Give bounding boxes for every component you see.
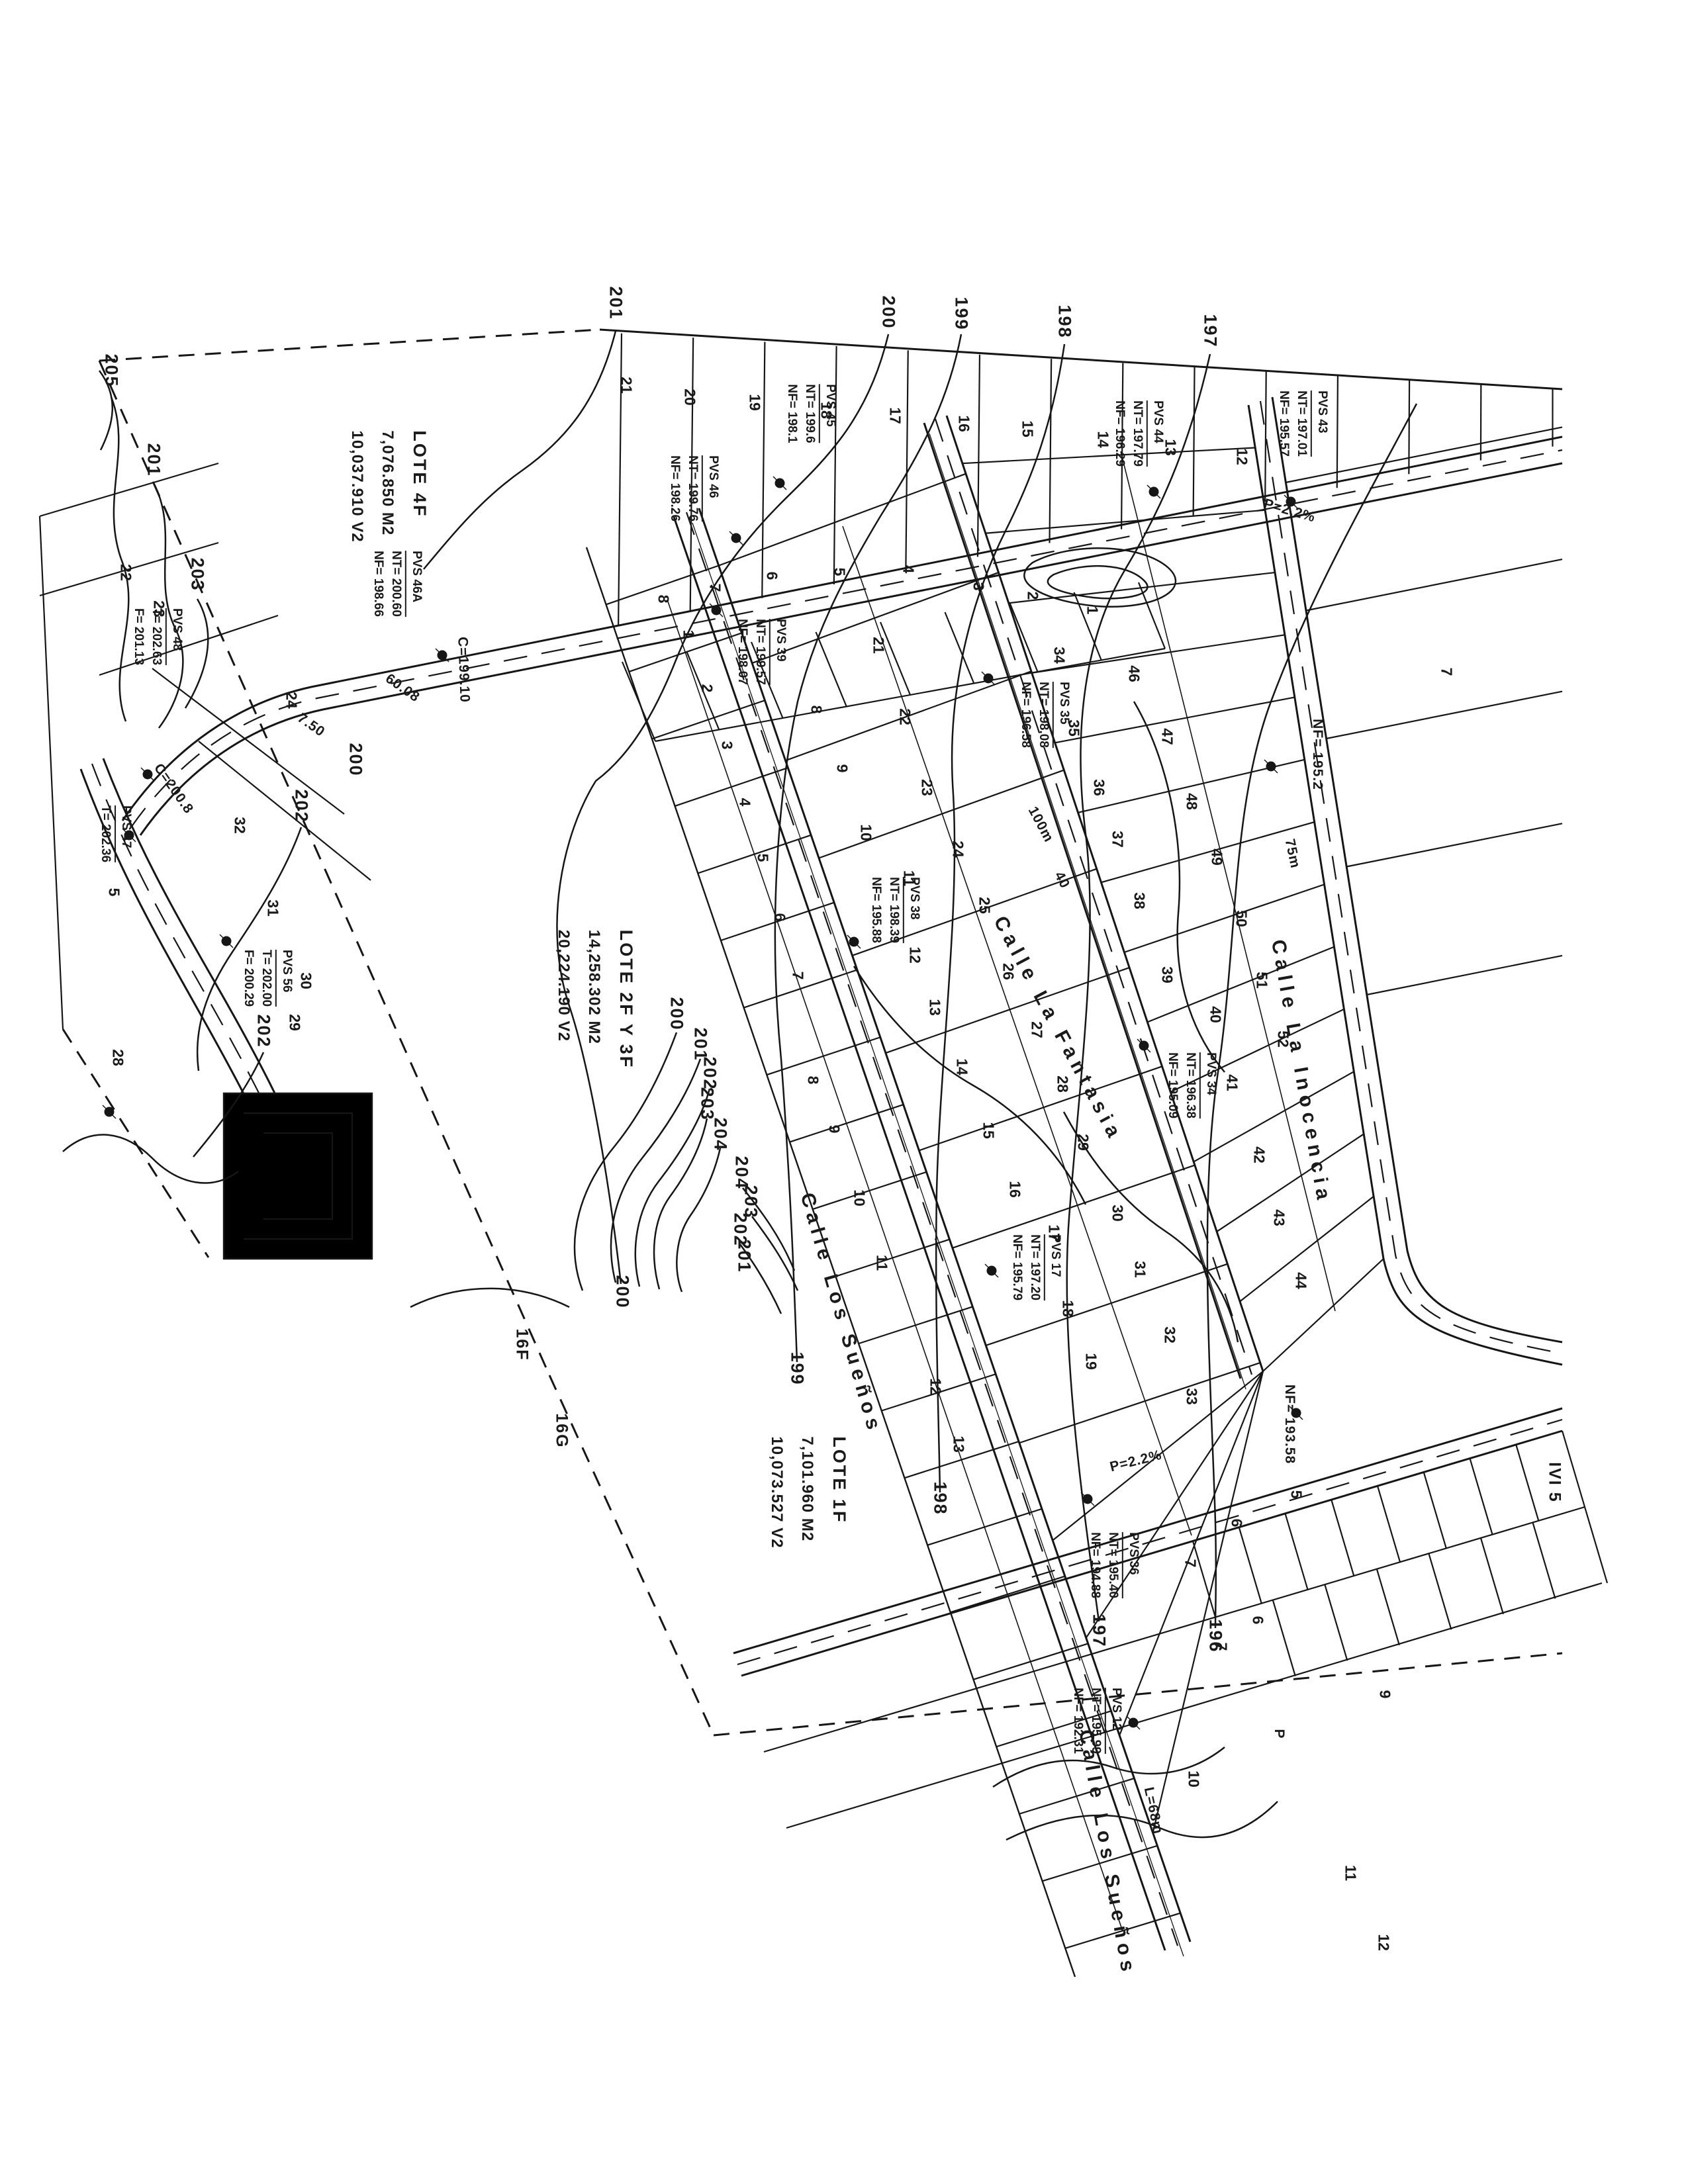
lot-number: 26 [1000,963,1017,980]
lot-number: 7 [1182,1559,1199,1568]
lot-number: 13 [926,999,944,1016]
lot-number: 16 [1006,1181,1024,1198]
pvs-elevation-value: NT= 196.38 [1182,1052,1200,1118]
lot-number: 30 [297,972,315,989]
lot-number: 46 [1125,665,1143,682]
contour-elevation-label: 203 [187,557,208,591]
contour-elevation-label: 202 [291,789,312,823]
pvs-elevation-value: NT= 195.99 [1087,1688,1105,1754]
contour-elevation-label: 203 [697,1087,718,1120]
map-annotation: C=199.10 [454,637,472,703]
pvs-elevation-value: F= 201.13 [129,608,148,665]
lote-area-m2: 14,258.302 M2 [579,930,609,1069]
lot-number: 2 [698,684,716,693]
pvs-elevation-value: T= 202.63 [148,608,166,665]
contour-elevation-label: 198 [930,1481,951,1515]
pvs-elevation-value: NF= 195.79 [1008,1234,1026,1300]
pvs-station: PVS 45NT= 199.6NF= 198.1 [782,384,839,443]
lot-number: 14 [953,1058,971,1075]
lote-area-m2: 7,076.850 M2 [372,430,402,542]
lot-number: 12 [927,1378,945,1395]
lot-number: 11 [1342,1865,1360,1881]
pvs-station-id: PVS 38 [903,877,923,943]
lot-number: 14 [1094,431,1112,448]
contour-elevation-label: 201 [606,286,626,320]
pvs-station-id: PVS 56 [275,950,296,1007]
lot-number: 32 [231,817,249,834]
lot-number: 19 [746,394,764,411]
pvs-elevation-value: NT= 199.76 [684,455,702,522]
lot-number: 22 [117,564,135,581]
lot-number: 24 [283,692,301,709]
contour-elevation-label: 201 [734,1239,755,1273]
lot-number: 8 [808,705,825,714]
lote-area-m2: 7,101.960 M2 [792,1436,822,1548]
lote-4f-title-block: LOTE 4F 7,076.850 M2 10,037.910 V2 [342,430,436,542]
lot-number: 7 [1213,1643,1231,1651]
lot-number: 32 [1161,1326,1179,1343]
lot-number: 5 [831,568,849,576]
pvs-station: PVS 46NT= 199.76NF= 198.26 [665,455,722,522]
pvs-station: PVS 12NT= 195.99NF= 192.31 [1068,1688,1125,1754]
lot-number: 47 [1158,728,1176,745]
lot-number: 10 [857,824,875,841]
pvs-station: PVS 46ANT= 200.60NF= 198.66 [369,551,426,617]
pvs-elevation-value: NT= 198.08 [1035,682,1053,748]
lot-number: 38 [1131,892,1149,909]
pvs-station: PVS 48T= 202.63F= 201.13 [129,608,186,665]
contour-elevation-label: 202 [254,1014,274,1048]
pvs-elevation-value: F= 200.29 [239,950,258,1007]
lote-area-v2: 10,073.527 V2 [762,1436,792,1548]
pvs-station-id: PVS 48 [165,608,186,665]
pvs-elevation-value: NT= 199.57 [751,619,770,685]
pvs-station-id: PVS 17 [1044,1234,1064,1300]
lot-number: 52 [1274,1030,1292,1048]
lot-number: 1 [680,630,698,639]
lot-number: 24 [949,841,967,858]
contour-elevation-label: 199 [787,1351,808,1385]
parcel-grid-lines [40,330,1607,1977]
lot-number: 7 [789,972,807,980]
lot-number: 12 [1233,448,1251,465]
contour-elevation-label: 197 [1200,314,1221,347]
lote-area-v2: 10,037.910 V2 [342,430,373,542]
pvs-elevation-value: NT= 197.01 [1293,390,1311,457]
pvs-station-id: PVS 44 [1147,400,1167,467]
contour-elevation-label: 204 [710,1117,731,1151]
pvs-elevation-value: NT= 199.6 [801,384,820,443]
lot-number: 31 [1131,1261,1149,1278]
lot-number: 15 [980,1122,998,1139]
pvs-station: PVS 17NT= 197.20NF= 195.79 [1008,1234,1064,1300]
pvs-elevation-value: NF= 198.66 [369,551,387,617]
lot-number: 6 [1228,1519,1246,1527]
lot-number: 29 [286,1014,304,1031]
pvs-station-id: PVS 46A [405,551,426,617]
sheet-ref-ivi5: IVI 5 [1545,1462,1564,1502]
lot-number: 31 [264,899,282,917]
lote-2f-3f-title-block: LOTE 2F Y 3F 14,258.302 M2 20,224.190 V2 [549,930,643,1069]
lot-number: 17 [886,407,904,424]
pvs-elevation-value: NF= 195.09 [1163,1052,1182,1118]
lot-number: 1 [1084,606,1102,615]
lot-number: 3 [970,582,988,591]
lot-number: 30 [1109,1205,1127,1222]
pvs-station: PVS 38NT= 198.39NF= 195.88 [867,877,923,943]
lot-number: 9 [1376,1690,1394,1699]
lote-name: LOTE 1F [822,1436,856,1548]
contour-elevation-label: 200 [667,997,687,1030]
pvs-station-id: PVS 47 [115,805,136,862]
lot-number: 3 [718,741,736,750]
lot-number: 5 [105,888,123,897]
pvs-station-id: PVS 46 [702,455,722,522]
pvs-elevation-value: NT= 195.40 [1104,1532,1123,1598]
pvs-station: PVS 44NT= 197.79NF= 196.29 [1110,400,1167,467]
pvs-elevation-value: NF= 198.07 [733,619,751,685]
map-annotation: NF= 193.58 [1282,1385,1297,1464]
lot-number: 33 [1183,1388,1201,1405]
lot-number: 5 [1288,1490,1305,1499]
lot-number: 18 [1059,1300,1077,1317]
lot-number: 15 [1019,420,1037,437]
lot-number: 27 [1028,1021,1046,1038]
map-annotation: P [1271,1729,1287,1739]
map-annotation: NF= 195.2 [1309,719,1325,790]
lote-name: LOTE 2F Y 3F [609,930,643,1069]
sheet-ref-16f: 16F [512,1328,532,1361]
pvs-elevation-value: T= 202.36 [97,805,115,862]
pvs-station-id: PVS 12 [1105,1688,1125,1754]
contour-elevation-label: 200 [612,1275,633,1308]
pvs-elevation-value: NF= 196.58 [1016,682,1035,748]
pvs-station: PVS 56T= 202.00F= 200.29 [239,950,296,1007]
lot-number: 6 [1249,1616,1267,1625]
lot-number: 2 [1024,592,1042,600]
pvs-elevation-value: NT= 200.60 [387,551,406,617]
pvs-station: PVS 34NT= 196.38NF= 195.09 [1163,1052,1220,1118]
pvs-elevation-value: NF= 195.57 [1274,390,1293,457]
contour-elevation-label: 200 [346,743,366,776]
contour-elevation-label: 201 [144,443,164,477]
lot-number: 44 [1292,1272,1310,1289]
lot-number: 8 [804,1076,822,1085]
contour-elevation-label: 197 [1089,1614,1109,1647]
pvs-station: PVS 39NT= 199.57NF= 198.07 [733,619,790,685]
lot-number: 21 [870,637,888,654]
pvs-station-id: PVS 35 [1053,682,1073,748]
pvs-station-id: PVS 43 [1311,390,1331,457]
pvs-elevation-value: NF= 198.26 [665,455,684,522]
pvs-station: PVS 43NT= 197.01NF= 195.57 [1274,390,1331,457]
pvs-station-id: PVS 45 [819,384,839,443]
lot-number: 19 [1082,1353,1100,1370]
lot-number: 42 [1250,1146,1268,1163]
lot-number: 34 [1051,647,1068,664]
lot-number: 41 [1223,1074,1241,1091]
lot-number: 40 [1207,1006,1225,1023]
lote-name: LOTE 4F [402,430,436,542]
pvs-station: PVS 35NT= 198.08NF= 196.58 [1016,682,1073,748]
lot-number: 51 [1253,972,1271,989]
lot-number: 11 [873,1255,891,1271]
lote-1f-title-block: LOTE 1F 7,101.960 M2 10,073.527 V2 [762,1436,856,1548]
sheet-ref-16g: 16G [552,1413,571,1448]
lot-number: 13 [950,1435,968,1453]
lot-number: 12 [906,946,924,964]
lot-number: 25 [976,897,994,914]
lot-number: 49 [1208,848,1226,866]
pvs-elevation-value: NT= 198.39 [885,877,904,943]
pvs-station: PVS 36NT= 195.40NF= 194.88 [1086,1532,1143,1598]
pvs-elevation-value: NF= 192.31 [1068,1688,1087,1754]
lote-area-v2: 20,224.190 V2 [549,930,579,1069]
lot-number: 29 [1074,1134,1092,1151]
lot-number: 39 [1158,966,1176,983]
pvs-elevation-value: NF= 194.88 [1086,1532,1104,1598]
pvs-elevation-value: NF= 195.88 [867,877,885,943]
pvs-station: PVS 47T= 202.36 [97,805,135,862]
pvs-elevation-value: NF= 196.29 [1110,400,1129,467]
lot-number: 9 [833,764,851,773]
lot-number: 7 [706,584,724,592]
lot-number: 10 [851,1189,868,1206]
contour-elevation-label: 202 [700,1056,720,1090]
lot-number: 22 [896,708,914,725]
lot-number: 23 [918,779,936,796]
lot-number: 4 [736,798,754,807]
lot-number: 6 [771,913,789,922]
map-linework [0,0,1688,2184]
lot-number: 43 [1270,1209,1288,1226]
lot-number: 7 [1438,668,1456,676]
lot-number: 8 [655,595,673,604]
pvs-elevation-value: T= 202.00 [258,950,276,1007]
lot-number: 16 [955,415,973,432]
lot-number: 37 [1109,831,1127,848]
lot-number: 48 [1183,793,1201,810]
pvs-station-id: PVS 34 [1199,1052,1220,1118]
lot-number: 50 [1233,910,1250,927]
lot-number: 36 [1090,779,1108,796]
contour-elevation-label: 199 [951,296,972,330]
pvs-station-id: PVS 39 [769,619,790,685]
scanned-plat-map-page: LOTE 4F 7,076.850 M2 10,037.910 V2 LOTE … [0,0,1688,2184]
contour-elevation-label: 205 [101,353,122,387]
pvs-elevation-value: NT= 197.79 [1129,400,1147,467]
lot-number: 12 [1375,1934,1393,1951]
lot-number: 20 [681,388,699,406]
contour-elevation-label: 200 [878,295,899,329]
pvs-station-id: PVS 36 [1122,1532,1143,1598]
lot-number: 10 [1185,1770,1203,1788]
lot-number: 6 [763,572,781,580]
contour-elevation-label: 198 [1055,304,1075,338]
lot-number: 28 [1054,1075,1072,1093]
lot-number: 28 [109,1049,127,1066]
pvs-elevation-value: NF= 198.1 [782,384,801,443]
lot-number: 4 [900,565,917,574]
lot-number: 9 [825,1125,843,1134]
lot-number: 21 [618,377,635,394]
lot-number: 5 [754,854,772,862]
pvs-elevation-value: NT= 197.20 [1026,1234,1045,1300]
